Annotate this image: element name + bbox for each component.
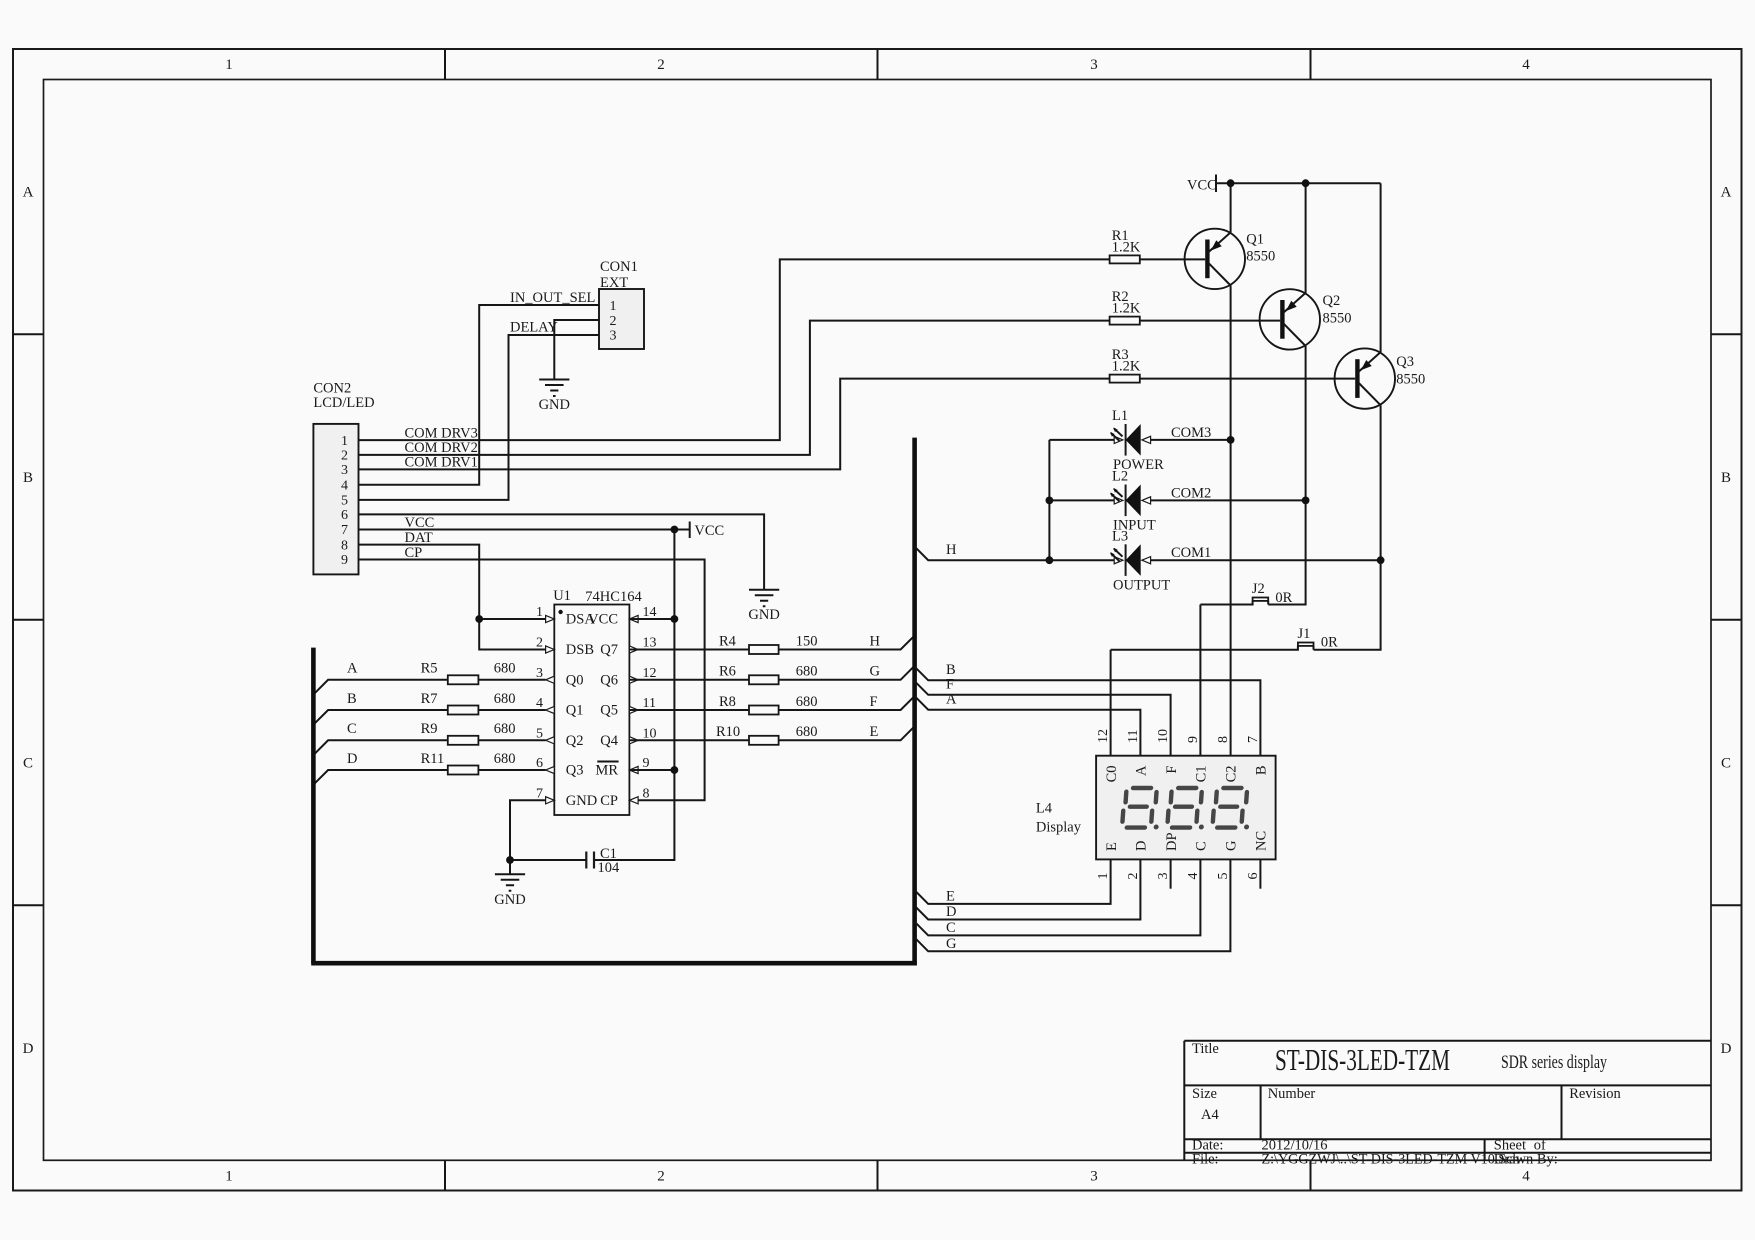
svg-text:6: 6	[536, 756, 543, 771]
svg-text:F: F	[946, 677, 954, 693]
svg-text:COM DRV1: COM DRV1	[405, 455, 478, 471]
svg-text:1: 1	[1096, 873, 1111, 880]
svg-text:11: 11	[643, 696, 656, 711]
svg-text:1: 1	[610, 299, 617, 314]
svg-text:2: 2	[341, 449, 348, 464]
svg-text:G: G	[1224, 840, 1240, 851]
svg-text:4: 4	[341, 478, 348, 493]
svg-text:LCD/LED: LCD/LED	[313, 395, 374, 411]
svg-text:4: 4	[1522, 1169, 1530, 1185]
svg-text:Q0: Q0	[566, 673, 584, 689]
svg-text:A4: A4	[1201, 1107, 1219, 1123]
svg-text:File:: File:	[1192, 1152, 1219, 1168]
svg-text:A: A	[946, 691, 957, 707]
svg-text:3: 3	[1090, 1169, 1098, 1185]
svg-text:2: 2	[610, 314, 617, 329]
svg-text:COM DRV2: COM DRV2	[405, 440, 478, 456]
svg-text:B: B	[1254, 766, 1270, 776]
svg-text:B: B	[1721, 470, 1731, 486]
svg-text:680: 680	[796, 664, 818, 680]
svg-text:OUTPUT: OUTPUT	[1113, 578, 1170, 594]
svg-text:GND: GND	[566, 793, 597, 809]
svg-text:NC: NC	[1254, 831, 1270, 851]
svg-text:G: G	[870, 664, 881, 680]
svg-text:104: 104	[598, 860, 621, 876]
svg-text:J2: J2	[1252, 581, 1265, 597]
svg-text:6: 6	[1246, 873, 1261, 880]
svg-text:Q3: Q3	[566, 763, 584, 779]
svg-text:E: E	[1104, 842, 1120, 851]
svg-text:3: 3	[536, 666, 543, 681]
svg-text:4: 4	[536, 696, 543, 711]
svg-text:A: A	[23, 185, 34, 201]
svg-text:COM1: COM1	[1171, 545, 1211, 561]
svg-text:8550: 8550	[1246, 249, 1275, 265]
svg-text:Revision: Revision	[1569, 1086, 1621, 1102]
svg-text:8550: 8550	[1323, 311, 1352, 327]
svg-text:9: 9	[1186, 736, 1201, 743]
svg-text:F: F	[1164, 766, 1180, 774]
svg-text:SDR series display: SDR series display	[1501, 1052, 1607, 1073]
svg-text:C: C	[347, 721, 357, 737]
svg-text:C: C	[946, 920, 956, 936]
svg-text:0R: 0R	[1321, 635, 1338, 651]
svg-text:5: 5	[341, 494, 348, 509]
svg-text:G: G	[946, 936, 957, 952]
svg-text:3: 3	[1090, 57, 1098, 73]
svg-text:EXT: EXT	[600, 275, 628, 291]
svg-text:L4: L4	[1036, 801, 1053, 817]
svg-text:Q7: Q7	[600, 642, 618, 658]
svg-text:4: 4	[1186, 873, 1201, 880]
svg-text:8: 8	[643, 787, 650, 802]
svg-text:7: 7	[341, 523, 348, 538]
svg-text:9: 9	[341, 553, 348, 568]
svg-text:DP: DP	[1164, 832, 1180, 851]
svg-text:1: 1	[341, 434, 348, 449]
svg-text:3: 3	[1156, 873, 1171, 880]
svg-text:VCC: VCC	[405, 515, 435, 531]
svg-text:1: 1	[225, 57, 233, 73]
svg-text:IN_OUT_SEL: IN_OUT_SEL	[510, 290, 595, 306]
svg-text:COM3: COM3	[1171, 425, 1211, 441]
svg-text:MR: MR	[595, 763, 618, 779]
svg-text:13: 13	[643, 636, 657, 651]
svg-text:Title: Title	[1192, 1041, 1219, 1057]
svg-text:VCC: VCC	[588, 612, 618, 628]
svg-text:Q2: Q2	[566, 733, 584, 749]
svg-text:8: 8	[1216, 736, 1231, 743]
svg-text:C1: C1	[1194, 766, 1210, 783]
svg-text:8550: 8550	[1396, 372, 1425, 388]
svg-text:C: C	[1194, 841, 1210, 851]
svg-text:C: C	[23, 755, 33, 771]
svg-text:L1: L1	[1112, 408, 1128, 424]
svg-text:C0: C0	[1104, 766, 1120, 783]
svg-text:1: 1	[536, 605, 543, 620]
svg-text:3: 3	[341, 463, 348, 478]
svg-text:5: 5	[536, 727, 543, 742]
svg-text:ST-DIS-3LED-TZM: ST-DIS-3LED-TZM	[1275, 1042, 1450, 1077]
svg-text:14: 14	[643, 605, 657, 620]
svg-text:CON1: CON1	[600, 259, 638, 275]
svg-text:Q6: Q6	[600, 673, 618, 689]
svg-text:E: E	[946, 889, 955, 905]
svg-text:12: 12	[1096, 729, 1111, 743]
svg-text:150: 150	[796, 633, 818, 649]
svg-text:Q1: Q1	[566, 703, 584, 719]
svg-text:680: 680	[796, 694, 818, 710]
svg-text:COM2: COM2	[1171, 485, 1211, 501]
svg-text:R11: R11	[421, 751, 445, 767]
svg-text:2: 2	[536, 636, 543, 651]
svg-text:CP: CP	[405, 545, 423, 561]
svg-text:3: 3	[610, 329, 617, 344]
svg-text:R7: R7	[421, 691, 438, 707]
svg-text:R10: R10	[716, 724, 740, 740]
svg-text:J1: J1	[1298, 626, 1311, 642]
svg-text:Drawn By:: Drawn By:	[1494, 1152, 1558, 1168]
svg-text:L3: L3	[1112, 529, 1128, 545]
svg-text:D: D	[23, 1041, 34, 1057]
svg-text:Q2: Q2	[1323, 293, 1341, 309]
svg-text:D: D	[1721, 1041, 1732, 1057]
svg-text:680: 680	[494, 691, 516, 707]
svg-text:Number: Number	[1268, 1086, 1316, 1102]
svg-text:GND: GND	[494, 892, 525, 908]
svg-text:D: D	[946, 904, 956, 920]
svg-text:Q4: Q4	[600, 733, 618, 749]
svg-text:680: 680	[494, 661, 516, 677]
svg-text:A: A	[347, 661, 358, 677]
svg-text:DAT: DAT	[405, 530, 433, 546]
svg-text:Q1: Q1	[1246, 232, 1264, 248]
svg-text:74HC164: 74HC164	[585, 589, 642, 605]
svg-text:H: H	[946, 542, 957, 558]
svg-text:1.2K: 1.2K	[1112, 359, 1141, 375]
svg-text:R6: R6	[719, 664, 736, 680]
svg-text:Q5: Q5	[600, 703, 618, 719]
svg-text:Size: Size	[1192, 1086, 1217, 1102]
svg-text:GND: GND	[748, 607, 779, 623]
svg-text:4: 4	[1522, 57, 1530, 73]
svg-text:7: 7	[536, 787, 543, 802]
svg-text:2: 2	[1126, 873, 1141, 880]
svg-text:VCC: VCC	[1187, 177, 1217, 193]
svg-text:F: F	[870, 694, 878, 710]
svg-text:C: C	[1721, 755, 1731, 771]
svg-text:11: 11	[1126, 730, 1141, 743]
svg-text:680: 680	[494, 721, 516, 737]
svg-text:1.2K: 1.2K	[1112, 239, 1141, 255]
svg-text:DSB: DSB	[566, 642, 594, 658]
svg-text:VCC: VCC	[694, 523, 724, 539]
svg-text:GND: GND	[539, 397, 570, 413]
svg-text:7: 7	[1246, 736, 1261, 743]
svg-text:R9: R9	[421, 721, 438, 737]
svg-text:B: B	[23, 470, 33, 486]
svg-text:CP: CP	[600, 793, 618, 809]
svg-text:680: 680	[796, 724, 818, 740]
svg-text:A: A	[1721, 185, 1732, 201]
svg-text:8: 8	[341, 538, 348, 553]
svg-text:2: 2	[657, 1169, 665, 1185]
svg-text:E: E	[870, 724, 879, 740]
svg-text:12: 12	[643, 666, 657, 681]
svg-text:B: B	[347, 691, 357, 707]
svg-text:U1: U1	[553, 588, 571, 604]
svg-text:6: 6	[341, 508, 348, 523]
svg-text:DELAY: DELAY	[510, 320, 558, 336]
svg-text:1: 1	[225, 1169, 233, 1185]
svg-text:9: 9	[643, 756, 650, 771]
svg-text:A: A	[1134, 765, 1150, 776]
svg-text:2: 2	[657, 57, 665, 73]
svg-text:L2: L2	[1112, 469, 1128, 485]
svg-text:D: D	[347, 751, 357, 767]
svg-text:R5: R5	[421, 661, 438, 677]
svg-text:COM DRV3: COM DRV3	[405, 425, 478, 441]
svg-text:C2: C2	[1224, 766, 1240, 783]
svg-text:5: 5	[1216, 873, 1231, 880]
svg-text:Display: Display	[1036, 820, 1082, 836]
svg-text:10: 10	[1156, 729, 1171, 743]
svg-text:1.2K: 1.2K	[1112, 301, 1141, 317]
svg-text:R4: R4	[719, 633, 737, 649]
svg-text:Z:\YGGZWJ\..\ST-DIS-3LED-TZM V: Z:\YGGZWJ\..\ST-DIS-3LED-TZM V10.Sch	[1262, 1152, 1521, 1168]
svg-text:R8: R8	[719, 694, 736, 710]
svg-text:D: D	[1134, 841, 1150, 851]
svg-text:Q3: Q3	[1396, 354, 1414, 370]
svg-text:10: 10	[643, 727, 657, 742]
svg-text:0R: 0R	[1275, 590, 1292, 606]
svg-text:680: 680	[494, 751, 516, 767]
svg-text:H: H	[870, 633, 881, 649]
